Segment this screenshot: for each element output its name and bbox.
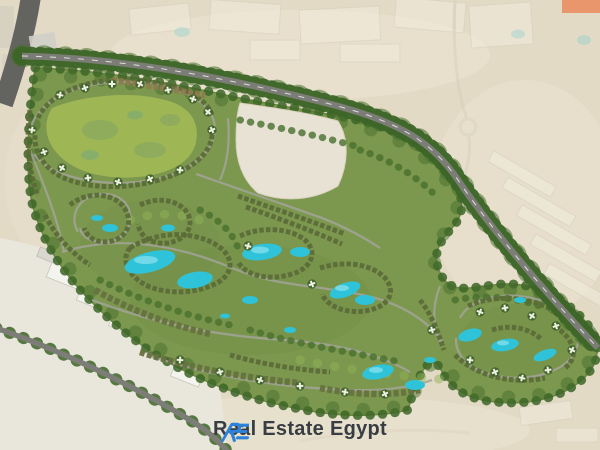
lagoon [242,296,258,304]
lagoon-highlight [497,341,509,346]
lagoon [405,380,425,390]
neighbor-pool [511,30,525,39]
lagoon-highlight [335,285,349,291]
lagoon [102,224,118,232]
masterplan-screenshot: Real Estate Egypt [0,0,600,450]
lagoon [424,357,436,363]
watermark: Real Estate Egypt [213,418,387,441]
masterplan-map [0,0,600,450]
lagoon-highlight [369,367,383,373]
neighbor-pool [577,35,591,45]
re-logo-icon [213,418,249,445]
lagoon-highlight [251,247,269,254]
lagoon [161,225,175,232]
lagoon-highlight [134,256,158,264]
lagoon [220,314,230,319]
lagoon [290,247,310,257]
lagoon [514,297,526,303]
lagoon [355,295,375,305]
villa-unit [107,79,116,88]
neighbor-pool [174,27,190,37]
lagoon [284,327,296,333]
corner-accent [562,0,600,13]
lagoon [91,215,103,221]
